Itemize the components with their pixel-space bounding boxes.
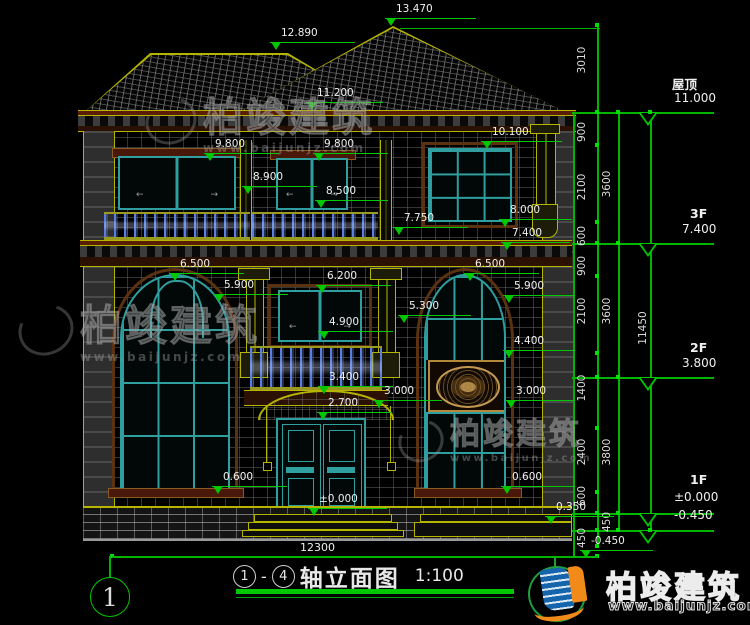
medallion-ornament [436, 366, 500, 408]
elevation-marker: 6.200 [316, 270, 391, 286]
level-triangle-2f [638, 377, 658, 391]
pendant-left [266, 406, 267, 464]
elevation-marker: 8.500 [315, 185, 388, 201]
sill-left-window [108, 488, 244, 498]
elevation-marker: 5.900 [213, 279, 288, 295]
slide-arrow-icon: ← [136, 190, 144, 200]
dim-chain-floors [618, 112, 620, 530]
level-name: 3F [690, 206, 707, 221]
elevation-marker: 10.100 [481, 126, 562, 142]
elevation-marker: 8.900 [242, 171, 317, 187]
axis-circle-end: 4 [272, 565, 295, 588]
tick-mark [616, 241, 620, 245]
tick-mark [595, 274, 599, 278]
elevation-marker: 4.400 [503, 335, 574, 351]
elevation-marker: 0.600 [501, 471, 574, 487]
tick-mark [595, 375, 599, 379]
slide-arrow-icon: ← [286, 190, 294, 200]
elevation-marker: 12.890 [270, 27, 355, 43]
entry-step-1 [254, 514, 392, 522]
elevation-marker: 4.900 [318, 316, 393, 332]
dim-text: 3800 [601, 420, 615, 484]
elevation-marker: 7.750 [393, 212, 468, 228]
level-value: -0.450 [674, 508, 713, 522]
elevation-marker: 0.600 [212, 471, 287, 487]
tick-mark [595, 426, 599, 430]
level-value: 3.800 [682, 356, 716, 370]
tick-mark [616, 528, 620, 532]
elevation-marker: 2.700 [317, 397, 392, 413]
dim-text: 11450 [637, 296, 651, 360]
dim-text: 3600 [601, 152, 615, 216]
entry-step-3 [242, 530, 404, 537]
slide-arrow-icon: → [210, 190, 218, 200]
slide-arrow-icon: ← [289, 322, 297, 332]
elevation-marker: 5.900 [503, 280, 574, 296]
peak-connector [400, 28, 600, 29]
right-step-2 [414, 522, 572, 537]
dim-text: 3600 [601, 279, 615, 343]
elevation-marker: 3.000 [505, 385, 574, 401]
corner-pilaster-left [83, 131, 115, 506]
tick-mark [595, 110, 599, 114]
elevation-marker: 13.470 [385, 3, 476, 19]
drawing-title: 1 - 4 轴立面图 1:100 [233, 559, 464, 593]
axis-circle-start: 1 [233, 565, 256, 588]
brand-url: www.baijunjz.com [608, 598, 750, 614]
level-value: 11.000 [674, 91, 716, 105]
tick-mark [595, 220, 599, 224]
elevation-marker: ±0.000 [308, 493, 387, 509]
title-scale: 1:100 [415, 566, 464, 586]
tick-mark [595, 528, 599, 532]
arch-window-left [120, 274, 230, 490]
dim-text: 2100 [576, 279, 590, 343]
elevation-marker: 0.350 [545, 501, 614, 517]
title-dash: - [261, 567, 267, 586]
tick-mark [648, 110, 652, 114]
elevation-marker: 9.800 [313, 138, 388, 154]
tick-mark [595, 351, 599, 355]
tick-mark [616, 511, 620, 515]
elevation-marker: 7.400 [501, 227, 570, 243]
level-triangle-1f [638, 513, 658, 527]
level-value: ±0.000 [674, 490, 718, 504]
elevation-marker: 6.500 [169, 258, 244, 274]
tick-mark [595, 23, 599, 27]
axis-number: 1 [102, 583, 118, 612]
elevation-marker: 5.300 [398, 300, 471, 316]
elevation-marker: -0.450 [580, 535, 653, 551]
tick-mark [595, 490, 599, 494]
tick-mark [648, 528, 652, 532]
dim-chain-inner [597, 25, 599, 546]
corner-column-shaft [536, 134, 556, 204]
title-underline-thick [236, 589, 514, 594]
tick-mark [595, 241, 599, 245]
extension-line [573, 112, 575, 556]
pendant-right [390, 406, 391, 464]
elevation-marker: 9.800 [204, 138, 279, 154]
window-3f-left: ← → [118, 156, 236, 210]
tick-mark [616, 110, 620, 114]
watermark-logo-icon [10, 296, 82, 365]
brand-logo: 柏竣建筑 www.baijunjz.com [526, 558, 748, 622]
level-name: 1F [690, 472, 707, 487]
elevation-marker: 6.500 [464, 258, 539, 274]
entry-step-2 [248, 522, 398, 530]
title-underline-thin [236, 597, 514, 598]
title-text: 轴立面图 [300, 559, 400, 593]
elevation-drawing: ← → ← → ← → [0, 0, 750, 625]
balustrade-3f-left [104, 212, 250, 240]
elevation-marker: 11.200 [306, 87, 383, 103]
level-name: 2F [690, 340, 707, 355]
balustrade-3f-center [252, 212, 378, 240]
axis-extension-line [109, 556, 111, 577]
dim-text: 1400 [576, 356, 590, 420]
level-triangle-roof [638, 112, 658, 126]
elevation-marker: 8.000 [499, 204, 572, 220]
tick-mark [595, 143, 599, 147]
overall-dim-text: 12300 [300, 541, 335, 554]
tick-mark [616, 375, 620, 379]
axis-bubble: 1 [90, 577, 130, 617]
dim-text: 3010 [576, 28, 590, 92]
level-triangle-3f [638, 243, 658, 257]
level-value: 7.400 [682, 222, 716, 236]
